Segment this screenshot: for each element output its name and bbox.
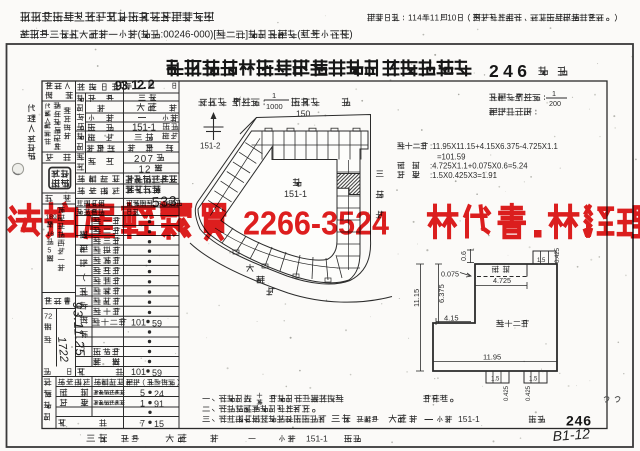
svg-text:59: 59 — [152, 368, 162, 378]
svg-text:151-2: 151-2 — [200, 142, 221, 151]
svg-text:93.11.25: 93.11.25 — [70, 301, 88, 356]
svg-text:93. 12. 2: 93. 12. 2 — [115, 77, 155, 93]
svg-text:91: 91 — [154, 399, 164, 409]
svg-text:10: 10 — [447, 13, 457, 22]
svg-text:11: 11 — [430, 13, 440, 22]
svg-text:0.425: 0.425 — [555, 247, 561, 263]
svg-text:4.725: 4.725 — [493, 276, 511, 285]
svg-text:1.5: 1.5 — [491, 377, 500, 383]
svg-text:12: 12 — [139, 165, 151, 176]
svg-text:5: 5 — [47, 245, 51, 254]
svg-text::4.725X1.1+0.075X0.6=5.24: :4.725X1.1+0.075X0.6=5.24 — [430, 162, 528, 171]
svg-text:151-1: 151-1 — [306, 434, 328, 444]
svg-text:101: 101 — [131, 318, 146, 328]
svg-text:101: 101 — [131, 367, 146, 377]
svg-text:0.425: 0.425 — [526, 385, 532, 401]
svg-text:2266-3524: 2266-3524 — [243, 205, 390, 242]
svg-text:1: 1 — [552, 89, 556, 98]
svg-text:4.15: 4.15 — [444, 314, 459, 323]
svg-text:150: 150 — [296, 109, 310, 119]
svg-text:0.6: 0.6 — [459, 251, 468, 261]
svg-text:B1-12: B1-12 — [552, 425, 591, 444]
svg-text:59: 59 — [152, 319, 162, 329]
svg-text:151-1: 151-1 — [458, 414, 480, 424]
svg-text:1: 1 — [140, 398, 145, 408]
svg-text::11.95X11.15+4.15X6.375-4.725X: :11.95X11.15+4.15X6.375-4.725X1.1 — [430, 142, 558, 151]
svg-text:15: 15 — [154, 419, 164, 429]
svg-text:0.075: 0.075 — [441, 270, 459, 279]
svg-text:24: 24 — [154, 389, 164, 399]
svg-text:1.5: 1.5 — [537, 258, 546, 264]
svg-text:1: 1 — [272, 91, 276, 100]
svg-text:0.425: 0.425 — [504, 385, 510, 401]
svg-text:=101.59: =101.59 — [437, 153, 465, 162]
svg-text::1.5X0.425X3=1.91: :1.5X0.425X3=1.91 — [430, 171, 497, 180]
svg-text:5: 5 — [140, 388, 145, 398]
svg-text::00246-000)[: :00246-000)[ — [161, 30, 217, 41]
svg-text:72: 72 — [44, 312, 52, 321]
svg-text:200: 200 — [549, 99, 561, 108]
svg-text:6.375: 6.375 — [437, 284, 446, 303]
svg-text:151-1: 151-1 — [132, 123, 156, 134]
svg-text:1.5: 1.5 — [529, 377, 538, 383]
svg-text:7: 7 — [140, 418, 145, 428]
svg-text:11.15: 11.15 — [412, 289, 421, 307]
svg-text:246: 246 — [489, 61, 527, 81]
svg-text:114: 114 — [408, 13, 422, 22]
svg-text:): ) — [349, 30, 352, 41]
svg-text:151-1: 151-1 — [284, 189, 307, 199]
svg-text:207: 207 — [134, 154, 153, 165]
svg-text:]: ] — [245, 30, 248, 41]
svg-text:1000: 1000 — [266, 102, 283, 111]
svg-text:11.95: 11.95 — [483, 353, 501, 362]
